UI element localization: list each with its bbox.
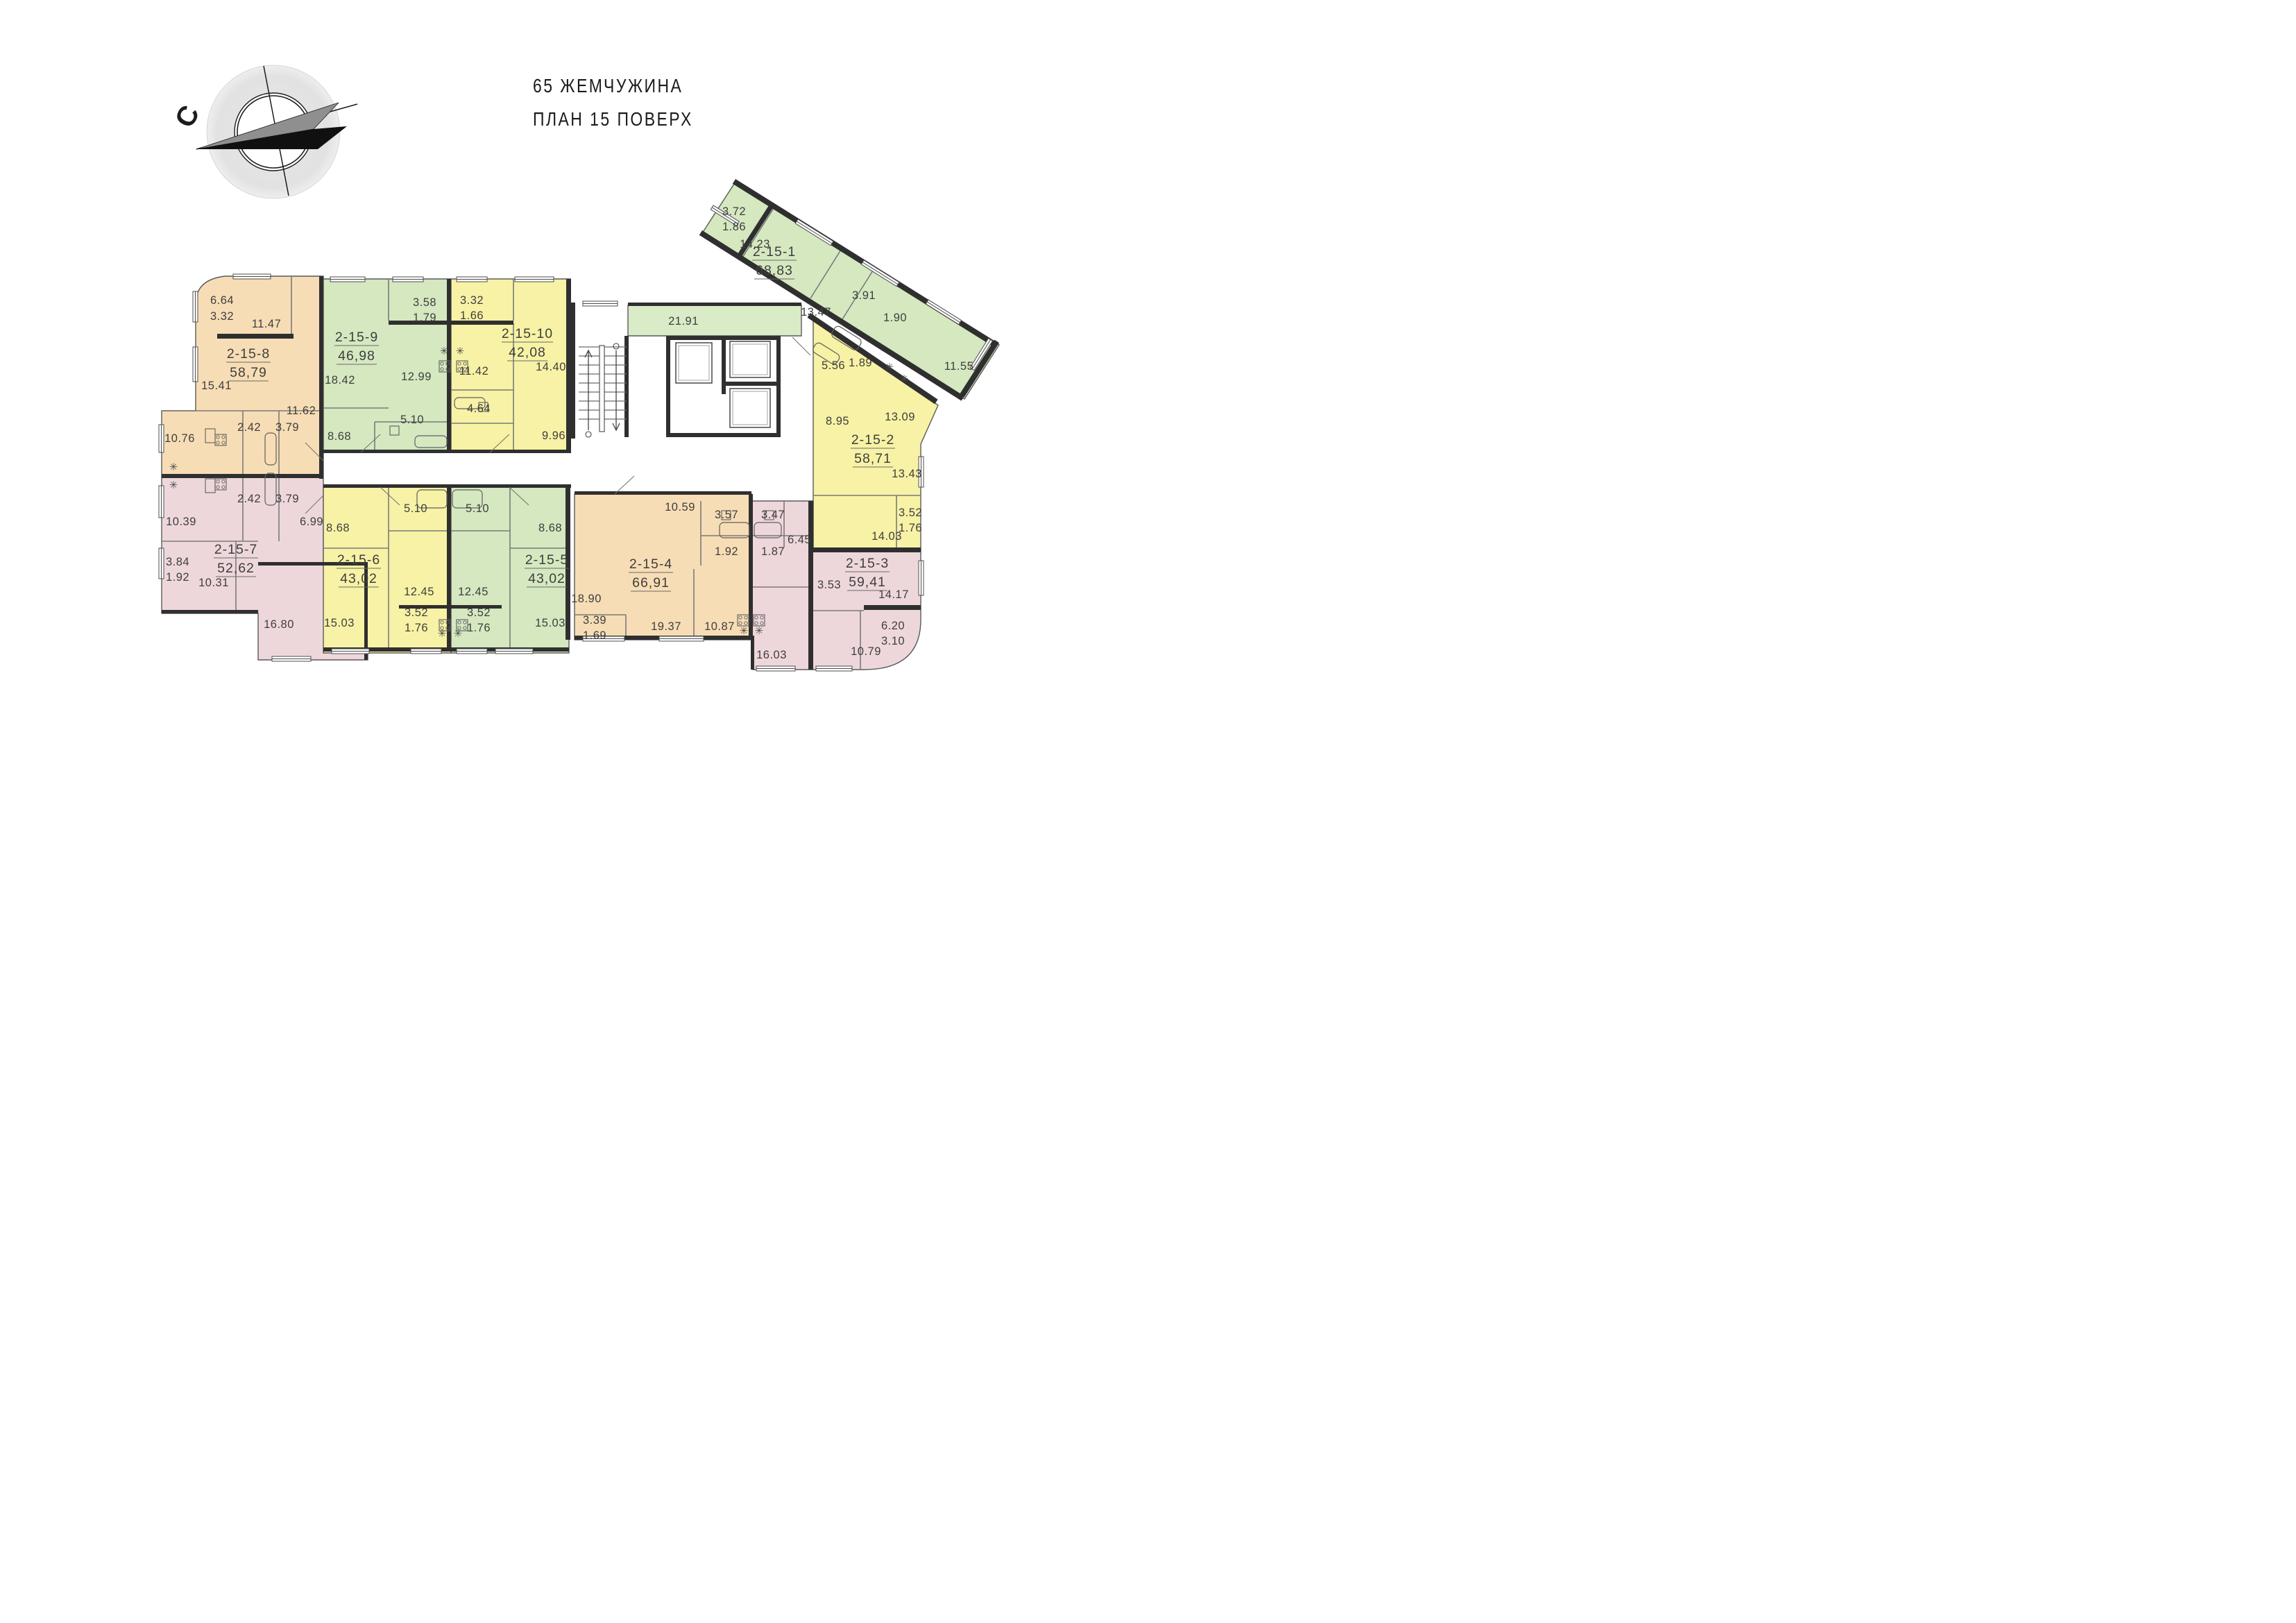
wall-segment xyxy=(571,303,575,439)
room-area-label: 1.87 xyxy=(761,545,785,558)
room-area-label: 5.10 xyxy=(404,502,427,515)
room-area-label: 10.76 xyxy=(164,432,195,445)
room-area-label: 13.47 xyxy=(801,306,831,318)
wall-segment xyxy=(217,334,294,339)
window-mark xyxy=(457,649,487,654)
unit-area: 59,41 xyxy=(849,575,886,590)
stair-stringer xyxy=(599,346,604,432)
window-mark xyxy=(159,548,164,579)
wall-segment xyxy=(666,336,670,437)
window-mark xyxy=(515,277,554,282)
window-mark xyxy=(756,666,795,671)
room-area-label: 8.68 xyxy=(328,430,351,443)
wall-segment xyxy=(389,321,513,325)
wall-segment xyxy=(666,433,781,437)
room-area-label: 12.45 xyxy=(404,586,434,598)
window-mark xyxy=(193,291,198,322)
wall-segment xyxy=(726,382,781,386)
corridor-2191[interactable] xyxy=(628,305,801,336)
unit-area: 58,71 xyxy=(854,451,892,466)
room-area-label: 3.39 xyxy=(583,614,606,627)
room-area-label: 3.10 xyxy=(881,635,905,647)
room-area-label: 4.64 xyxy=(467,402,491,415)
unit-id: 2-15-1 xyxy=(753,244,796,260)
room-area-label: 21.91 xyxy=(668,315,699,328)
stove-symbol: ✳ xyxy=(755,625,764,637)
elevator-car xyxy=(730,341,770,377)
unit-area: 43,02 xyxy=(340,571,377,586)
room-area-label: 16.03 xyxy=(756,649,787,661)
stove-symbol: ✳ xyxy=(885,362,894,373)
window-mark xyxy=(583,301,618,306)
elevator-car xyxy=(676,343,712,383)
room-area-label: 16.80 xyxy=(264,618,294,631)
unit-area: 52,62 xyxy=(217,561,255,576)
room-area-label: 11.47 xyxy=(252,318,282,330)
room-area-label: 8.68 xyxy=(326,522,350,534)
room-area-label: 1.89 xyxy=(849,357,872,369)
stove-symbol: ✳ xyxy=(169,461,178,473)
room-area-label: 13.09 xyxy=(885,411,915,423)
stove-symbol: ✳ xyxy=(438,628,447,640)
room-area-label: 3.52 xyxy=(899,507,922,519)
unit-id: 2-15-7 xyxy=(214,542,257,557)
room-area-label: 6.20 xyxy=(881,620,905,632)
stair-arrow-start xyxy=(586,432,591,437)
room-area-label: 11.62 xyxy=(287,405,316,417)
room-area-label: 10.31 xyxy=(198,577,229,589)
room-area-label: 9.96 xyxy=(542,430,566,442)
wall-segment xyxy=(575,491,751,495)
room-area-label: 15.41 xyxy=(201,380,232,392)
elevator-car xyxy=(730,389,770,427)
wall-segment xyxy=(624,336,629,437)
room-area-label: 2.42 xyxy=(237,493,261,505)
room-area-label: 6.45 xyxy=(788,534,811,546)
elevator-car-outline xyxy=(676,343,712,383)
room-area-label: 3.84 xyxy=(166,556,189,568)
room-area-label: 3.52 xyxy=(405,606,428,619)
room-area-label: 12.45 xyxy=(458,586,488,598)
elevator-car-outline xyxy=(730,341,770,377)
floor-plan-drawing: 6.643.3211.4715.4111.6210.762.423.792.42… xyxy=(0,0,1148,812)
wall-segment xyxy=(628,303,801,306)
window-mark xyxy=(816,666,852,671)
wall-segment xyxy=(810,547,921,552)
wall-segment xyxy=(749,494,753,640)
unit-id: 2-15-4 xyxy=(629,556,672,572)
stove-symbol: ✳ xyxy=(900,373,909,385)
room-area-label: 3.91 xyxy=(852,289,876,302)
stove-symbol: ✳ xyxy=(169,479,178,491)
room-area-label: 1.92 xyxy=(715,545,738,558)
room-area-label: 10.79 xyxy=(851,645,881,658)
wall-segment xyxy=(722,336,726,394)
room-area-label: 3.52 xyxy=(467,606,491,619)
window-mark xyxy=(411,649,441,654)
room-area-label: 15.03 xyxy=(535,617,566,629)
window-mark xyxy=(919,561,924,595)
unit-area: 68,83 xyxy=(756,263,793,278)
room-area-label: 6.64 xyxy=(210,294,234,307)
window-mark xyxy=(193,347,198,382)
room-area-label: 1.76 xyxy=(405,622,428,634)
room-area-label: 3.53 xyxy=(817,579,841,591)
unit-id: 2-15-9 xyxy=(335,330,378,345)
wall-segment xyxy=(776,336,781,437)
unit-area: 42,08 xyxy=(509,345,546,360)
room-area-label: 8.95 xyxy=(826,415,849,427)
room-area-label: 1.92 xyxy=(166,571,189,584)
window-mark xyxy=(159,425,164,452)
room-area-label: 18.42 xyxy=(325,374,355,386)
stair-arrow-start xyxy=(613,343,619,349)
window-mark xyxy=(159,486,164,518)
room-area-label: 2.42 xyxy=(237,421,261,434)
unit-area: 43,02 xyxy=(528,571,566,586)
room-area-label: 6.99 xyxy=(300,516,323,528)
room-area-label: 10.39 xyxy=(166,516,196,528)
unit-area: 58,79 xyxy=(230,365,267,380)
wall-segment xyxy=(162,474,323,478)
window-mark xyxy=(332,649,369,654)
room-area-label: 5.10 xyxy=(400,414,424,426)
stove-symbol: ✳ xyxy=(456,346,465,357)
door-leaf-line xyxy=(792,337,810,355)
compass-north-letter: С xyxy=(169,101,205,133)
wall-segment xyxy=(323,450,571,453)
room-area-label: 10.59 xyxy=(665,501,695,513)
wall-segment xyxy=(162,610,258,613)
unit-area: 46,98 xyxy=(338,348,375,364)
room-area-label: 19.37 xyxy=(651,620,681,633)
window-mark xyxy=(457,277,487,282)
room-area-label: 8.68 xyxy=(538,522,562,534)
room-area-label: 12.99 xyxy=(401,371,432,383)
room-area-label: 15.03 xyxy=(324,617,355,629)
stove-symbol: ✳ xyxy=(454,628,463,640)
room-area-label: 3.32 xyxy=(210,310,234,323)
window-mark xyxy=(330,277,365,282)
room-area-label: 3.79 xyxy=(275,421,299,434)
wall-segment xyxy=(751,636,754,670)
room-area-label: 11.55 xyxy=(944,360,974,373)
elevator-car-outline xyxy=(730,389,770,427)
unit-id: 2-15-5 xyxy=(525,552,568,568)
window-mark xyxy=(272,656,311,661)
unit-area: 66,91 xyxy=(632,575,670,590)
unit-id: 2-15-8 xyxy=(227,346,270,362)
room-area-label: 1.76 xyxy=(467,622,491,634)
staircase xyxy=(579,343,627,437)
room-area-label: 11.42 xyxy=(459,365,489,377)
room-area-label: 10.87 xyxy=(704,620,735,633)
stove-symbol: ✳ xyxy=(740,625,749,637)
window-mark xyxy=(393,277,423,282)
room-area-label: 3.72 xyxy=(722,205,746,218)
wall-segment xyxy=(808,501,813,670)
room-area-label: 1.69 xyxy=(583,629,606,642)
room-area-label: 3.32 xyxy=(460,294,484,307)
stove-symbol: ✳ xyxy=(440,346,449,357)
unit-id: 2-15-3 xyxy=(846,556,889,571)
room-area-label: 13.43 xyxy=(892,468,922,480)
wall-segment xyxy=(319,276,323,479)
window-mark xyxy=(233,274,271,279)
room-area-label: 3.57 xyxy=(715,509,738,521)
north-compass: С xyxy=(169,65,357,198)
wall-segment xyxy=(864,605,921,610)
unit-id: 2-15-2 xyxy=(851,432,894,448)
unit-id: 2-15-10 xyxy=(502,326,553,341)
floor-plan-page: 65 ЖЕМЧУЖИНА ПЛАН 15 ПОВЕРХ 6.643.3211.4… xyxy=(0,0,1148,812)
room-area-label: 3.79 xyxy=(275,493,299,505)
room-area-label: 1.66 xyxy=(460,309,484,322)
room-area-label: 5.56 xyxy=(822,359,845,372)
room-area-label: 3.58 xyxy=(413,296,436,309)
room-area-label: 1.86 xyxy=(722,221,746,233)
window-mark xyxy=(495,649,533,654)
room-area-label: 3.47 xyxy=(761,509,785,521)
room-area-label: 1.79 xyxy=(413,312,436,324)
unit-id: 2-15-6 xyxy=(337,552,380,568)
window-mark xyxy=(659,636,704,641)
room-area-label: 1.76 xyxy=(899,522,922,534)
wall-segment xyxy=(566,279,571,452)
room-area-label: 18.90 xyxy=(571,593,602,605)
room-area-label: 1.90 xyxy=(883,312,907,324)
room-area-label: 14.03 xyxy=(871,530,902,543)
room-area-label: 14.40 xyxy=(536,361,566,373)
room-area-label: 5.10 xyxy=(466,502,489,515)
